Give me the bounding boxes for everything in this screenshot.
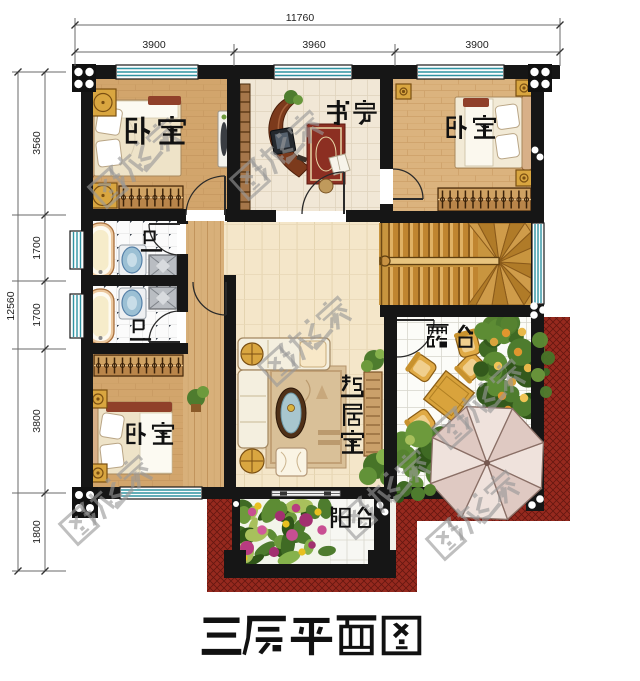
svg-text:1700: 1700 xyxy=(31,236,43,260)
svg-text:3900: 3900 xyxy=(142,39,166,51)
svg-text:12560: 12560 xyxy=(5,291,17,320)
svg-text:3900: 3900 xyxy=(465,39,489,51)
svg-text:3560: 3560 xyxy=(31,131,43,155)
svg-text:3960: 3960 xyxy=(302,39,326,51)
svg-text:3800: 3800 xyxy=(31,409,43,433)
svg-text:11760: 11760 xyxy=(286,12,315,24)
svg-text:1800: 1800 xyxy=(31,520,43,544)
svg-text:1700: 1700 xyxy=(31,303,43,327)
